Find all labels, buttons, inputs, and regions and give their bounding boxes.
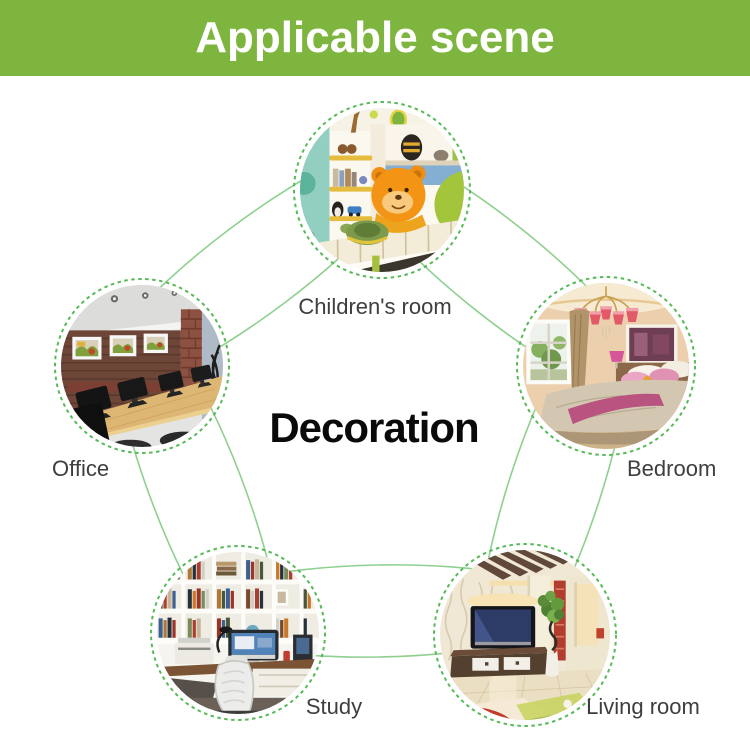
page: Applicable scene [0,0,750,750]
bedroom-photo [523,283,689,449]
scene-circle-children-room [300,108,464,272]
tv [471,606,536,649]
children-room-photo [300,108,464,272]
printer [175,638,214,664]
label-bedroom: Bedroom [627,456,716,482]
label-study: Study [306,694,362,720]
office-photo [61,285,223,447]
study-photo [157,552,319,714]
scene-circle-study [157,552,319,714]
scene-circle-bedroom [523,283,689,449]
label-children-room: Children's room [298,294,451,320]
scene-circle-living-room [440,550,610,720]
tv-cabinet [450,647,550,678]
label-office: Office [52,456,109,482]
scene-circle-office [61,285,223,447]
label-living-room: Living room [586,694,700,720]
window [526,320,571,385]
center-title: Decoration [269,404,478,452]
wall-picture [626,325,677,365]
living-room-photo [440,550,610,720]
